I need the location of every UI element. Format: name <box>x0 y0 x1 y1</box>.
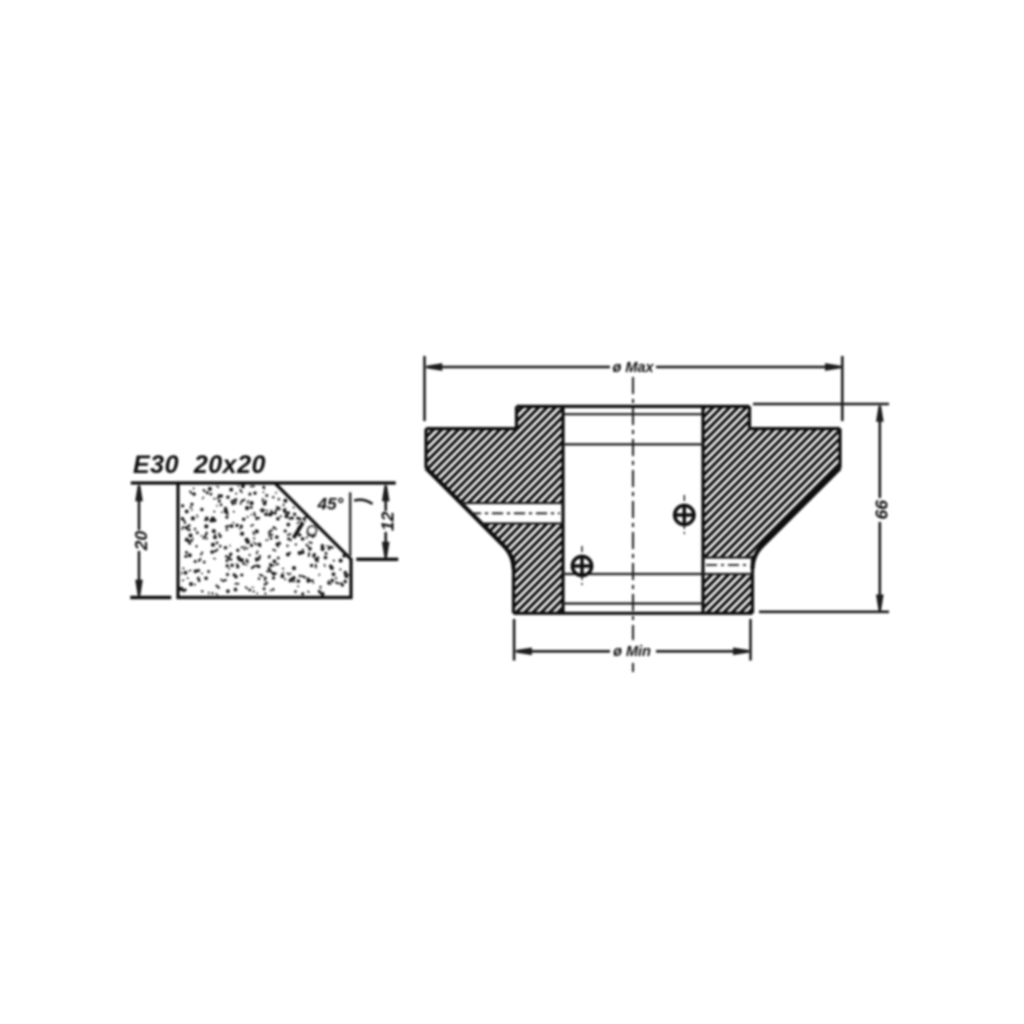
svg-text:12: 12 <box>378 511 398 531</box>
svg-text:45°: 45° <box>317 495 344 514</box>
svg-text:66: 66 <box>871 500 891 520</box>
svg-text:ø Min: ø Min <box>613 644 651 660</box>
svg-text:ø Max: ø Max <box>612 360 654 376</box>
svg-text:20: 20 <box>131 531 151 552</box>
svg-text:E30 20x20: E30 20x20 <box>133 451 266 479</box>
